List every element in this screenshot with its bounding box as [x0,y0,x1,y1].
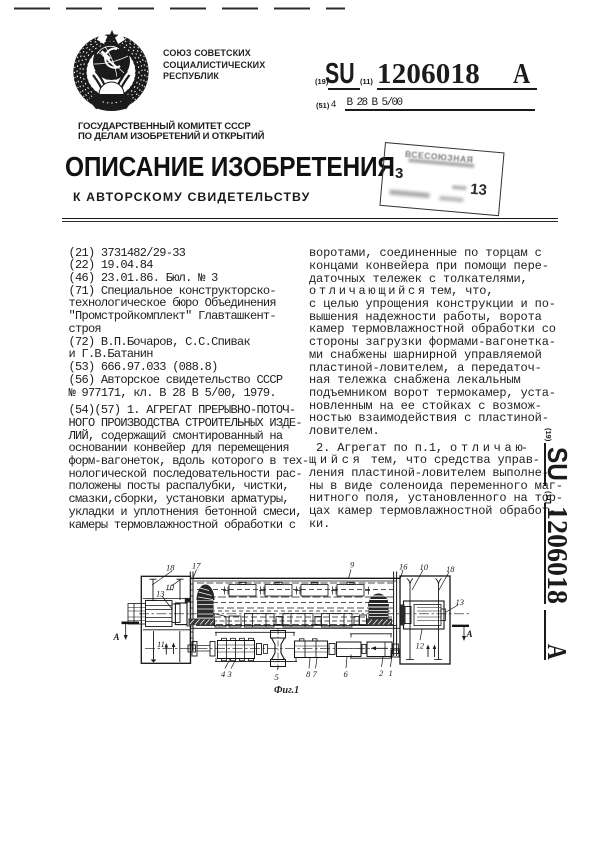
svg-text:А: А [113,632,120,642]
svg-text:17: 17 [192,561,201,571]
svg-text:13: 13 [156,589,165,599]
svg-text:12: 12 [416,641,425,651]
svg-text:18: 18 [166,563,175,573]
svg-text:4: 4 [221,669,226,679]
svg-text:9: 9 [350,560,355,570]
svg-text:8: 8 [306,669,311,679]
svg-text:16: 16 [399,562,408,572]
svg-text:10: 10 [166,582,175,592]
svg-text:1: 1 [389,668,393,678]
svg-text:11: 11 [157,639,165,649]
svg-text:2: 2 [379,668,384,678]
svg-text:6: 6 [344,669,349,679]
svg-text:10: 10 [420,562,429,572]
svg-text:5: 5 [275,672,279,682]
svg-text:18: 18 [446,564,455,574]
svg-text:А: А [466,629,473,639]
svg-text:13: 13 [456,597,465,607]
svg-text:3: 3 [227,669,232,679]
svg-text:7: 7 [313,669,318,679]
